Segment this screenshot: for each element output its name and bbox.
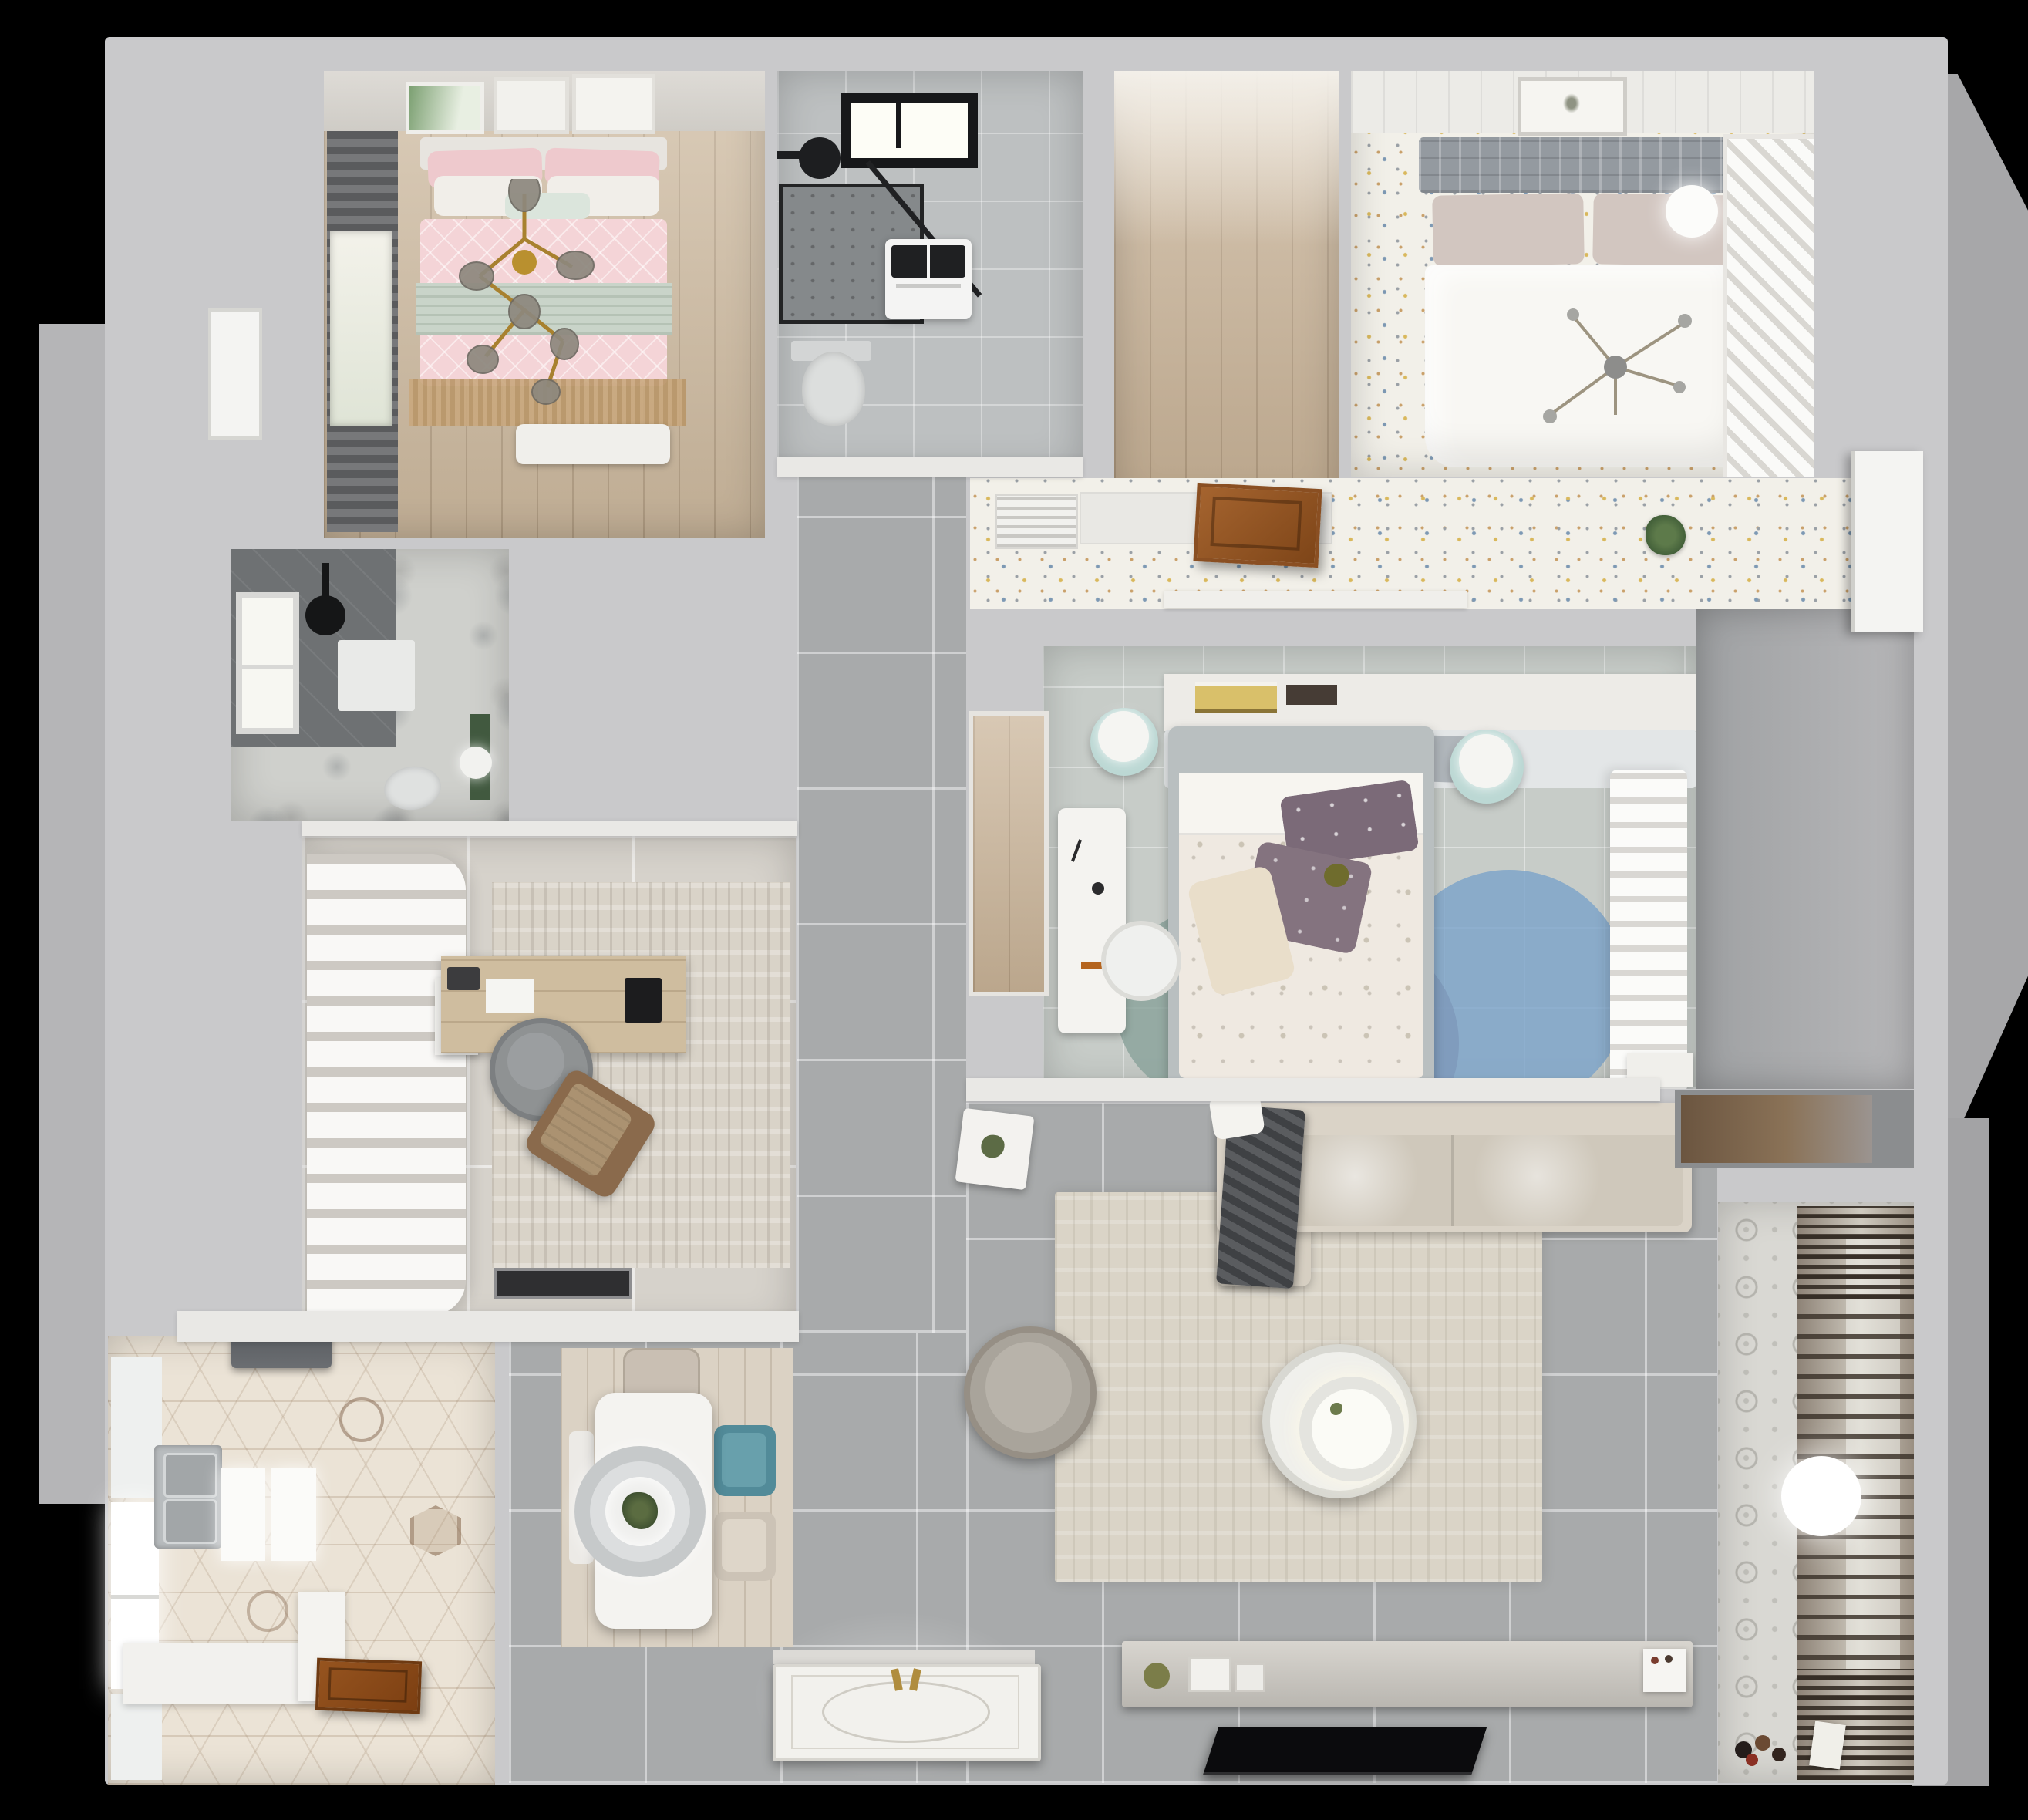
dining-chair-teal xyxy=(714,1425,776,1496)
floor-plan-render xyxy=(0,0,2028,1820)
room-entry xyxy=(773,1650,1035,1757)
window-bright xyxy=(236,592,299,734)
doormat xyxy=(494,1268,632,1299)
potted-plant-icon xyxy=(1646,515,1686,555)
desk-paper xyxy=(486,979,534,1013)
wall-art-frame xyxy=(1518,77,1627,136)
open-white-door xyxy=(1851,451,1923,632)
decor-vase-box xyxy=(1643,1649,1686,1692)
books-stack xyxy=(1195,682,1277,713)
sheer-curtain xyxy=(1610,770,1687,1089)
open-timber-door xyxy=(315,1658,422,1714)
rain-shower-icon xyxy=(799,137,841,179)
sphere-floor-lamp xyxy=(1781,1456,1861,1536)
entry-door xyxy=(773,1664,1041,1761)
ring-pendant-light xyxy=(574,1446,706,1577)
flower-dot-2 xyxy=(1665,1655,1673,1663)
bench xyxy=(516,424,670,464)
island-worktop-2 xyxy=(271,1468,316,1561)
plant-icon xyxy=(980,1134,1006,1159)
sink-basin-1 xyxy=(163,1453,217,1498)
room-bedroom-pink xyxy=(324,71,765,538)
chair-seat xyxy=(722,1519,766,1572)
side-table xyxy=(955,1108,1034,1190)
room-bathroom-main xyxy=(777,71,1083,474)
room-hallway-right xyxy=(1696,609,1914,1089)
timber-shelf xyxy=(1681,1095,1872,1163)
room-study xyxy=(302,834,796,1333)
room-kitchen xyxy=(108,1336,495,1785)
washer-controls xyxy=(896,284,961,288)
room-bedroom-kids xyxy=(1043,646,1696,1089)
pouf-mint-right xyxy=(1450,730,1524,804)
washer-drum xyxy=(891,245,965,278)
book-dark xyxy=(1286,685,1337,705)
room-closet-walkin xyxy=(1114,71,1339,507)
pillow-left xyxy=(1432,193,1585,266)
pouf-lamp xyxy=(1459,734,1513,788)
desk-white xyxy=(1058,808,1126,1033)
wall-band-bath-corridor xyxy=(777,457,1083,477)
room-laundry xyxy=(1718,1202,1914,1783)
shower-mat xyxy=(338,640,415,711)
island-worktop-1 xyxy=(221,1468,265,1561)
art-sketch xyxy=(1561,92,1582,115)
toilet xyxy=(381,763,443,814)
wall-band-study-top xyxy=(302,821,797,836)
television xyxy=(1203,1727,1487,1775)
window-bay xyxy=(330,231,392,426)
skylight-window xyxy=(841,93,978,168)
flower-dot-1 xyxy=(1651,1657,1659,1664)
side-door-left xyxy=(208,308,262,440)
door-ornament-frame xyxy=(791,1675,1019,1749)
base-cabinet xyxy=(123,1643,316,1704)
room-dressing-area xyxy=(970,478,1881,609)
sink-unit xyxy=(154,1445,222,1549)
room-living xyxy=(966,1086,1717,1783)
rack-dense-top xyxy=(1797,1206,1914,1299)
door-panel xyxy=(1211,497,1302,551)
desk-pens xyxy=(1071,839,1082,862)
room-bedroom-master xyxy=(1351,71,1814,477)
toy-3 xyxy=(1772,1748,1786,1761)
table-lamp-ring xyxy=(1299,1377,1404,1481)
display-ledge xyxy=(1164,591,1467,608)
closet-niche xyxy=(969,711,1049,996)
decor-frames xyxy=(1188,1657,1231,1692)
toy-2 xyxy=(1755,1735,1770,1751)
rain-shower-icon xyxy=(305,595,345,635)
pouf-mint-left xyxy=(1090,708,1158,776)
monitor-icon xyxy=(625,978,662,1023)
background-shadow-left xyxy=(39,324,106,1504)
wall-art-green xyxy=(406,82,484,134)
hex-motif-1 xyxy=(339,1397,384,1442)
hex-motif-2 xyxy=(410,1505,461,1556)
open-timber-door xyxy=(1193,483,1322,568)
room-bathroom-guest xyxy=(231,549,509,821)
decor-green-ball xyxy=(1144,1663,1170,1689)
pouf-lamp xyxy=(1098,711,1149,762)
room-corridor xyxy=(797,477,966,1333)
slatted-wardrobe xyxy=(1723,134,1814,477)
bed-kids xyxy=(1168,726,1434,1089)
counter-left-bottom xyxy=(111,1694,162,1780)
door-panel xyxy=(328,1667,407,1703)
toilet-bowl xyxy=(802,352,865,426)
shower-arm xyxy=(322,563,329,600)
coffee-table xyxy=(1262,1344,1417,1498)
paper-stack xyxy=(1809,1721,1846,1769)
headboard-grey xyxy=(1419,137,1758,193)
armchair-seat xyxy=(985,1342,1072,1433)
desk-tray xyxy=(447,967,480,990)
sheer-drapes xyxy=(307,854,466,1316)
sphere-lamp xyxy=(460,747,492,779)
armchair xyxy=(964,1326,1097,1459)
tv-sideboard xyxy=(1122,1641,1693,1707)
toy-4 xyxy=(1746,1754,1758,1766)
desk-handles xyxy=(1081,962,1103,969)
desk-chair-white xyxy=(1101,921,1181,1001)
storage-niche xyxy=(1675,1090,1914,1168)
ac-grille-icon xyxy=(995,494,1078,549)
desk-dot xyxy=(1092,882,1104,895)
shower-arm xyxy=(777,151,805,159)
olive-accent xyxy=(1324,864,1349,887)
wall-band-living-top xyxy=(966,1078,1660,1101)
dining-chair-beige xyxy=(714,1512,776,1581)
bed-master xyxy=(1419,137,1758,467)
ceiling-light-wash xyxy=(1114,71,1339,507)
chair-seat xyxy=(507,1033,564,1090)
threshold xyxy=(773,1650,1035,1664)
sphere-pendant-lamp xyxy=(1666,185,1718,238)
wall-art-script xyxy=(494,77,569,134)
skylight-mullion xyxy=(896,93,901,148)
branch-chandelier-icon xyxy=(1527,299,1704,438)
wall-band-study-kitchen xyxy=(177,1311,799,1342)
headboard-shelf xyxy=(1164,674,1696,731)
hex-motif-3 xyxy=(247,1590,288,1632)
branch-chandelier-icon xyxy=(432,179,617,410)
decor-frame-small xyxy=(1235,1663,1265,1692)
wall-art-botanical xyxy=(572,74,655,134)
chair-seat xyxy=(722,1433,766,1487)
sink-basin-2 xyxy=(163,1499,217,1544)
centrepiece-plant-icon xyxy=(622,1492,658,1529)
washing-machine xyxy=(885,239,972,319)
